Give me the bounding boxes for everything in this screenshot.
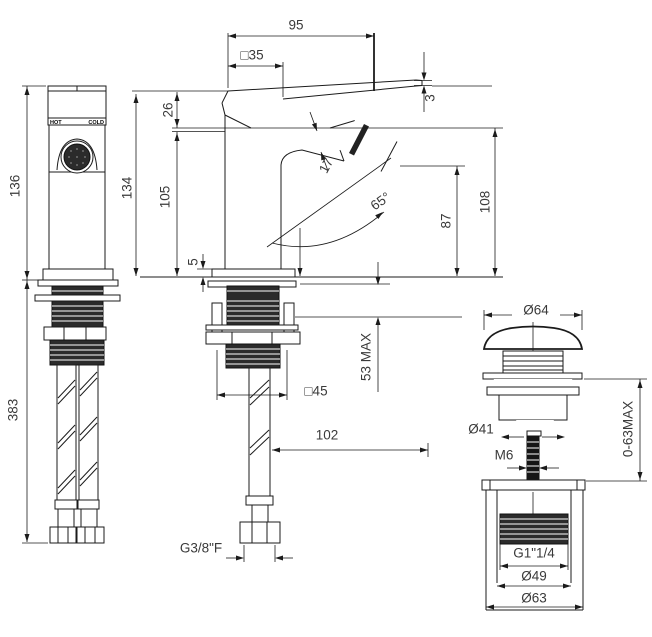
- dimension-lever-to-spout: 26 105: [158, 92, 503, 276]
- dim-spout-top-height: 108: [478, 191, 493, 214]
- dim-cap-diameter: Ø64: [523, 303, 549, 318]
- supply-hose-side: [240, 368, 280, 543]
- dim-lever-to-spout: 26: [161, 102, 176, 117]
- drain-body: [499, 395, 567, 436]
- dimension-spray-angle: 65°: [267, 158, 393, 276]
- dim-waste-outer-diameter: Ø63: [521, 591, 547, 606]
- dimension-hose-thread: G3/8"F: [180, 541, 293, 562]
- dimension-waste-inner-diameter: Ø49: [497, 569, 571, 589]
- dim-hose-thread: G3/8"F: [180, 541, 222, 556]
- dim-waste-thread: G1"1/4: [513, 546, 555, 561]
- dim-rod-thread: M6: [495, 448, 514, 463]
- dimension-lever-tip: 3: [414, 52, 492, 112]
- front-view: HOT COLD: [35, 86, 120, 543]
- dimension-deck-thickness: 53 MAX: [300, 262, 390, 392]
- dimension-front-height: 136 383: [6, 86, 48, 543]
- dimension-mounting-range: 0-63MAX: [584, 379, 647, 481]
- dimension-waste-thread: G1"1/4: [500, 544, 568, 570]
- dim-hose-offset: 102: [316, 428, 339, 443]
- threaded-rod: [527, 436, 539, 480]
- dim-base-square: □45: [304, 384, 327, 399]
- thread-insert: [500, 514, 568, 544]
- aerator: [61, 141, 93, 173]
- dim-base-plate-height: 5: [186, 258, 201, 266]
- dim-spout-reach: 95: [288, 18, 303, 33]
- hose-nut-side: [240, 522, 280, 543]
- handle-block: HOT COLD: [48, 86, 106, 126]
- lever-handle: [222, 80, 422, 128]
- dim-total-height: 383: [6, 399, 21, 422]
- dim-side-height: 134: [120, 176, 135, 199]
- dimension-waste-outer-diameter: Ø63: [486, 591, 583, 610]
- dimension-outlet-height: 87: [400, 166, 465, 276]
- dim-outlet-height: 87: [439, 213, 454, 228]
- mounting-shank-front: [35, 269, 120, 365]
- dim-mounting-range: 0-63MAX: [621, 401, 636, 457]
- hose-nuts: [50, 527, 104, 543]
- side-view: [206, 80, 422, 543]
- dim-spout-to-deck: 105: [158, 186, 173, 209]
- dim-spray-angle: 65°: [368, 189, 393, 213]
- drain-flange: [483, 373, 582, 395]
- dimension-side-height: 134: [120, 91, 228, 276]
- faucet-body-front: [49, 125, 105, 270]
- dim-drain-body-diameter: Ø41: [468, 422, 494, 437]
- dim-deck-thickness-max: 53 MAX: [359, 333, 374, 381]
- faucet-drawing: HOT COLD: [0, 0, 652, 637]
- dimension-spout-top-height: 108: [478, 128, 498, 276]
- supply-hoses: [50, 365, 104, 543]
- dim-body-square: □35: [240, 48, 263, 63]
- technical-drawing-sheet: HOT COLD: [0, 0, 652, 637]
- dimension-spout-section: 17: [310, 112, 336, 176]
- dim-lever-tip-thickness: 3: [423, 94, 438, 102]
- dim-waste-inner-diameter: Ø49: [521, 569, 547, 584]
- dim-front-height: 136: [8, 175, 23, 198]
- mounting-shank-side: [206, 269, 300, 368]
- dimension-hose-offset: 102: [272, 428, 428, 457]
- drain-view: [482, 322, 585, 610]
